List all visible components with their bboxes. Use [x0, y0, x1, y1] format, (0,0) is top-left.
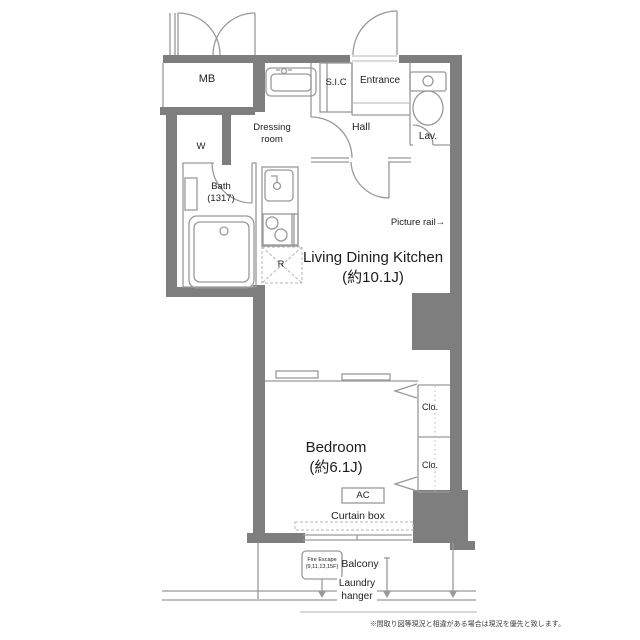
wall-left-main: [253, 285, 265, 543]
floorplan: MB W Dressing room S.I.C Entrance Hall L…: [0, 0, 640, 640]
sliding-panel-1: [276, 371, 318, 378]
floorplan-drawing: [0, 0, 640, 640]
stove-console: [292, 214, 298, 245]
room-label-bath: Bath (1317): [207, 181, 234, 206]
kitchen-faucet-spout: [271, 176, 277, 182]
mb-door-leaves: [178, 13, 255, 55]
toilet-tank: [410, 72, 446, 91]
room-label-dressing: Dressing room: [253, 122, 291, 147]
wall-mb-bottom: [160, 107, 255, 115]
wall-right: [450, 55, 462, 492]
pillar-ldk: [412, 293, 452, 350]
room-label-ldk: Living Dining Kitchen (約10.1J): [303, 248, 443, 287]
mb-door-frame: [170, 13, 175, 55]
room-label-bedroom: Bedroom (約6.1J): [306, 438, 367, 477]
vanity-counter: [266, 68, 316, 96]
label-fridge: R: [278, 259, 285, 271]
pillar-foot: [450, 541, 475, 550]
stove-burner-2: [275, 229, 287, 241]
room-label-lav: Lav.: [419, 130, 437, 143]
pillar-bedroom: [413, 490, 468, 543]
bathtub-drain: [220, 227, 228, 235]
wall-mb-stub: [253, 55, 265, 112]
hanger-foot-2: [383, 591, 391, 598]
entrance-door-arc: [353, 11, 397, 55]
sliding-panel-2: [342, 374, 390, 380]
disclaimer-text: ※間取り図等現況と相違がある場合は現況を優先と致します。: [370, 620, 565, 629]
label-curtain-box: Curtain box: [331, 510, 385, 524]
bathtub-inner: [194, 222, 249, 282]
dressing-door-arc: [311, 117, 352, 158]
room-label-mb: MB: [199, 72, 216, 86]
vanity-faucet: [282, 69, 287, 74]
closet-folding-door-upper: [395, 384, 417, 398]
entrance-threshold: [352, 56, 397, 61]
bath-washstand: [185, 178, 197, 210]
bathtub-outer: [189, 216, 254, 288]
bedroom-window: [303, 535, 412, 540]
kitchen-faucet: [274, 183, 281, 190]
wall-w-dressing: [222, 112, 231, 165]
toilet-bowl: [413, 91, 443, 125]
laundry-post: [384, 558, 390, 591]
room-label-hall: Hall: [352, 121, 370, 135]
label-closet-lower: Clo.: [422, 460, 438, 472]
label-picture-rail: Picture rail→: [391, 217, 445, 229]
wall-left-upper: [166, 107, 177, 297]
room-label-entrance: Entrance: [360, 74, 400, 87]
stove-burner-1: [266, 217, 278, 229]
label-fire-escape: Fire Escape (9,11,13,15F): [302, 557, 342, 571]
toilet-flush-button: [423, 76, 433, 86]
label-balcony: Balcony: [341, 558, 378, 572]
label-closet-upper: Clo.: [422, 402, 438, 414]
hanger-foot-1: [318, 591, 326, 598]
hanger-foot-3: [449, 591, 457, 598]
vanity-bowl: [271, 74, 311, 91]
hall-door-arc: [351, 162, 389, 198]
room-label-w: W: [197, 141, 206, 153]
closet-folding-door-lower: [395, 477, 417, 491]
label-laundry-hanger: Laundry hanger: [337, 577, 377, 603]
room-label-sic: S.I.C: [325, 77, 346, 89]
wall-hall-ldk: [311, 158, 411, 162]
kitchen-sink: [265, 170, 293, 201]
label-ac: AC: [356, 490, 369, 502]
